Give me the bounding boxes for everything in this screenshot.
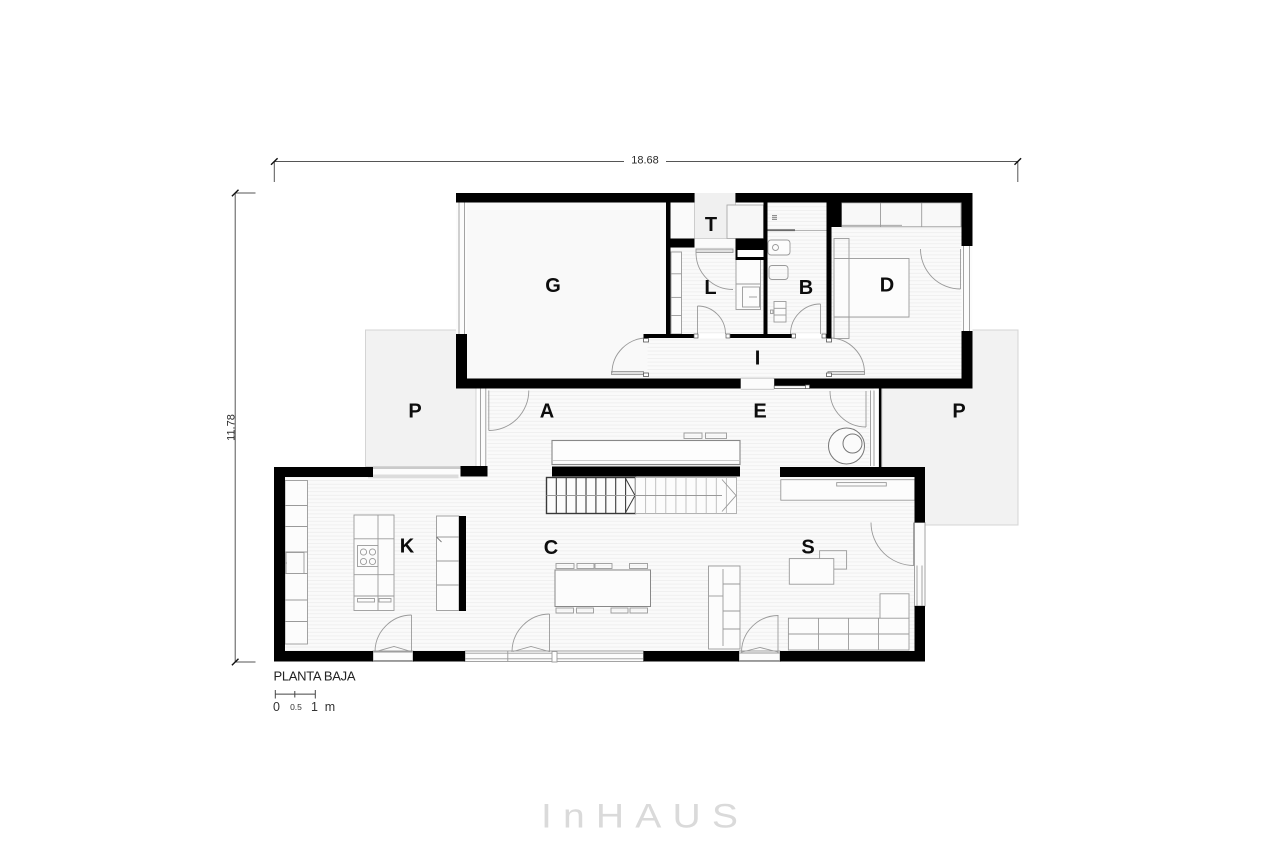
svg-text:K: K — [400, 536, 415, 558]
svg-text:E: E — [753, 401, 766, 423]
svg-text:B: B — [799, 277, 813, 299]
svg-text:0: 0 — [273, 700, 280, 714]
svg-text:0.5: 0.5 — [290, 702, 302, 712]
svg-text:C: C — [544, 537, 558, 559]
svg-text:m: m — [325, 700, 335, 714]
svg-text:L: L — [704, 277, 716, 299]
svg-text:A: A — [540, 401, 554, 423]
svg-text:I: I — [755, 348, 761, 370]
svg-text:P: P — [952, 401, 965, 423]
svg-text:18.68: 18.68 — [631, 155, 659, 167]
svg-text:1: 1 — [311, 700, 318, 714]
svg-text:T: T — [705, 214, 717, 236]
svg-text:S: S — [801, 537, 814, 559]
svg-text:G: G — [545, 275, 561, 297]
svg-text:11.78: 11.78 — [226, 414, 238, 441]
svg-text:D: D — [880, 275, 894, 297]
svg-text:P: P — [408, 401, 421, 423]
svg-text:InHAUS: InHAUS — [541, 797, 749, 835]
svg-text:PLANTA BAJA: PLANTA BAJA — [274, 669, 356, 684]
